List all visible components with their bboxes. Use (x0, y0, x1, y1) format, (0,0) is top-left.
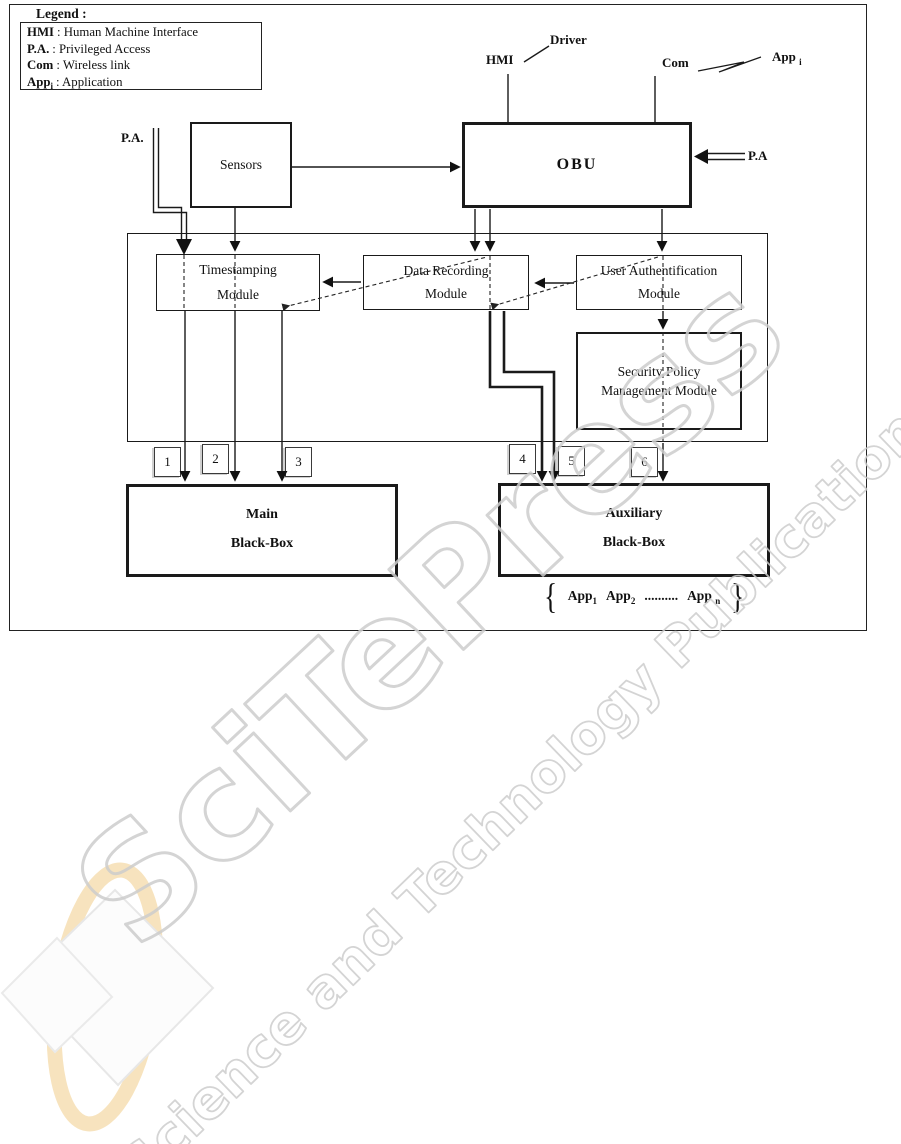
app-n-sub: n (715, 596, 720, 606)
app-2: App2 (606, 588, 635, 604)
label-app-i: App i (772, 49, 802, 65)
main-bb-line1: Main (246, 507, 278, 523)
aux-bb-line2: Black-Box (603, 535, 665, 551)
logo-diamond-large (20, 890, 213, 1085)
sensors-box: Sensors (190, 122, 292, 208)
auxiliary-black-box: Auxiliary Black-Box (498, 483, 770, 577)
main-black-box: Main Black-Box (126, 484, 398, 577)
security-policy-line1: Security Policy (618, 362, 701, 381)
security-policy-module-box: Security Policy Management Module (576, 332, 742, 430)
timestamping-module-box: Timestamping Module (156, 254, 320, 311)
label-hmi: HMI (486, 52, 513, 68)
label-app-base: App (772, 49, 796, 64)
brace-left: { (544, 578, 557, 614)
legend-item-pa: P.A.: Privileged Access (27, 42, 261, 59)
app-2-base: App (606, 588, 631, 603)
legend-term: P.A. (27, 42, 49, 56)
app-n: App n (687, 588, 720, 604)
legend-def: : Application (56, 75, 122, 89)
aux-bb-line1: Auxiliary (606, 506, 663, 522)
label-pa-left: P.A. (121, 130, 144, 146)
app-dots: .......... (644, 588, 678, 604)
connector-1: 1 (154, 447, 181, 477)
connector-2: 2 (202, 444, 229, 474)
connector-5: 5 (558, 446, 585, 476)
security-policy-line2: Management Module (601, 381, 717, 400)
timestamping-line2: Module (217, 287, 259, 303)
obu-box: OBU (462, 122, 692, 208)
legend-box: HMI: Human Machine Interface P.A.: Privi… (20, 22, 262, 90)
label-driver: Driver (550, 32, 587, 48)
user-authentification-module-box: User Authentification Module (576, 255, 742, 310)
timestamping-line1: Timestamping (199, 262, 277, 278)
label-pa-right: P.A (748, 148, 767, 164)
data-recording-line1: Data Recording (403, 263, 488, 279)
legend-def: : Privileged Access (52, 42, 150, 56)
app-1-base: App (568, 588, 593, 603)
legend-item-app: Appi: Application (27, 75, 261, 92)
connector-4: 4 (509, 444, 536, 474)
app-n-base: App (687, 588, 712, 603)
legend-term-sub: i (50, 81, 53, 91)
brace-right: } (731, 578, 744, 614)
label-app-sub: i (799, 57, 802, 67)
legend-item-hmi: HMI: Human Machine Interface (27, 25, 261, 42)
connector-3: 3 (285, 447, 312, 477)
obu-label: OBU (557, 156, 598, 174)
logo-ring (40, 864, 171, 1131)
legend-term: Com (27, 58, 53, 72)
legend-term: App (27, 75, 50, 89)
legend-term: HMI (27, 25, 54, 39)
sensors-label: Sensors (220, 157, 262, 173)
figure-canvas: Legend : HMI: Human Machine Interface P.… (0, 0, 901, 1144)
user-auth-line2: Module (638, 286, 680, 302)
user-auth-line1: User Authentification (601, 263, 718, 279)
app-1: App1 (568, 588, 597, 604)
legend-item-com: Com: Wireless link (27, 58, 261, 75)
legend-def: : Wireless link (56, 58, 130, 72)
data-recording-module-box: Data Recording Module (363, 255, 529, 310)
legend-title: Legend : (36, 6, 87, 22)
connector-6: 6 (631, 447, 658, 477)
label-com: Com (662, 55, 689, 71)
app-1-sub: 1 (593, 596, 598, 606)
scitepress-logo (2, 864, 213, 1131)
main-bb-line2: Black-Box (231, 536, 293, 552)
data-recording-line2: Module (425, 286, 467, 302)
app-2-sub: 2 (631, 596, 636, 606)
legend-def: : Human Machine Interface (57, 25, 198, 39)
logo-diamond-small (2, 938, 112, 1052)
app-list: { App1 App2 .......... App n } (516, 577, 772, 615)
